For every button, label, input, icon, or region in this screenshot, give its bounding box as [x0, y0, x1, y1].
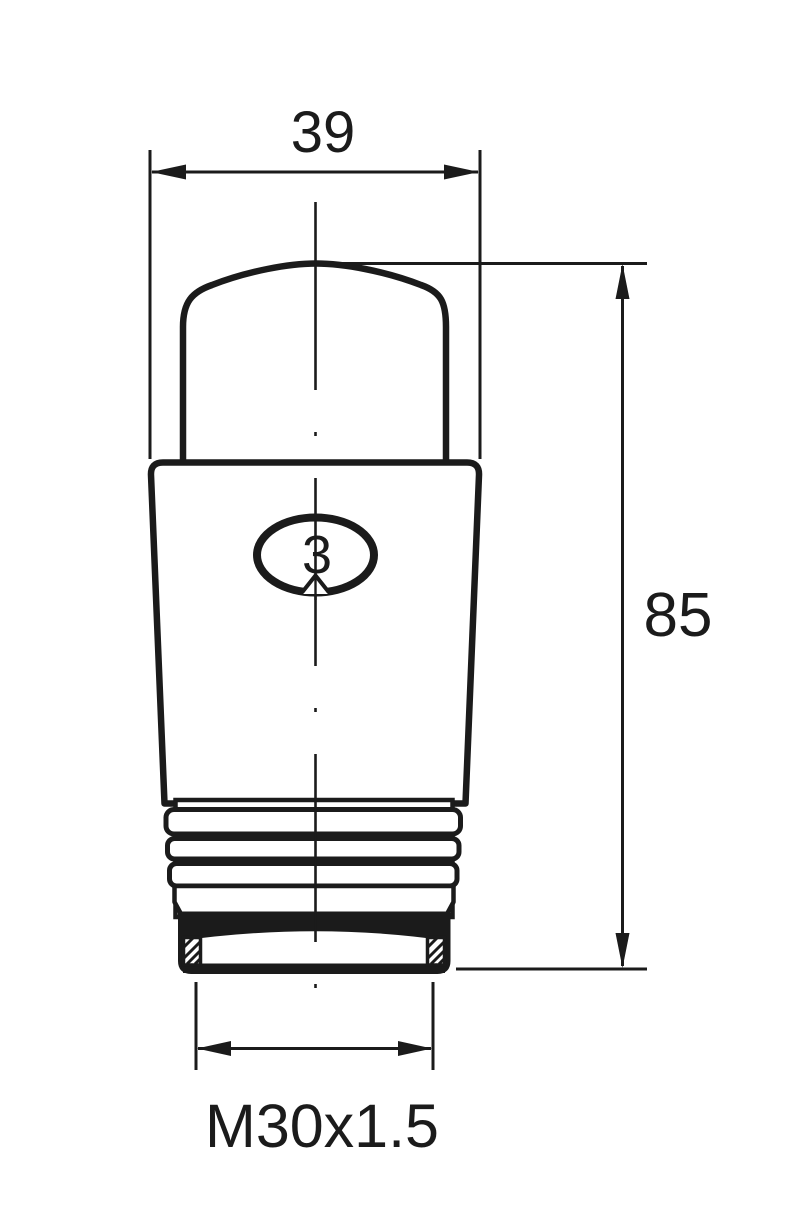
arrowhead-down-icon	[616, 933, 630, 968]
thread-hatch-right	[428, 938, 445, 966]
bottom-rim	[183, 964, 445, 974]
dimension-height-value: 85	[644, 581, 713, 650]
dimension-width-value: 39	[291, 100, 356, 165]
lower-step	[175, 886, 454, 914]
dimension-thread-value: M30x1.5	[205, 1092, 439, 1160]
grip-rib-2	[168, 839, 460, 860]
arrowhead-right-icon	[444, 165, 479, 180]
arrowhead-right-icon	[398, 1041, 432, 1056]
setting-indicator: 3	[257, 518, 374, 601]
drawing-canvas: 3 39 85 M30x1.5	[0, 0, 810, 1232]
grip-rib-1	[166, 810, 461, 835]
arrowhead-left-icon	[197, 1041, 231, 1056]
dimension-thread: M30x1.5	[196, 982, 439, 1160]
grip-rib-3	[170, 864, 458, 887]
arrowhead-left-icon	[151, 165, 186, 180]
technical-drawing: 3 39 85 M30x1.5	[0, 0, 810, 1232]
thread-hatch-left	[184, 938, 201, 966]
arrowhead-up-icon	[616, 264, 630, 299]
indicator-setting-number: 3	[302, 525, 332, 585]
